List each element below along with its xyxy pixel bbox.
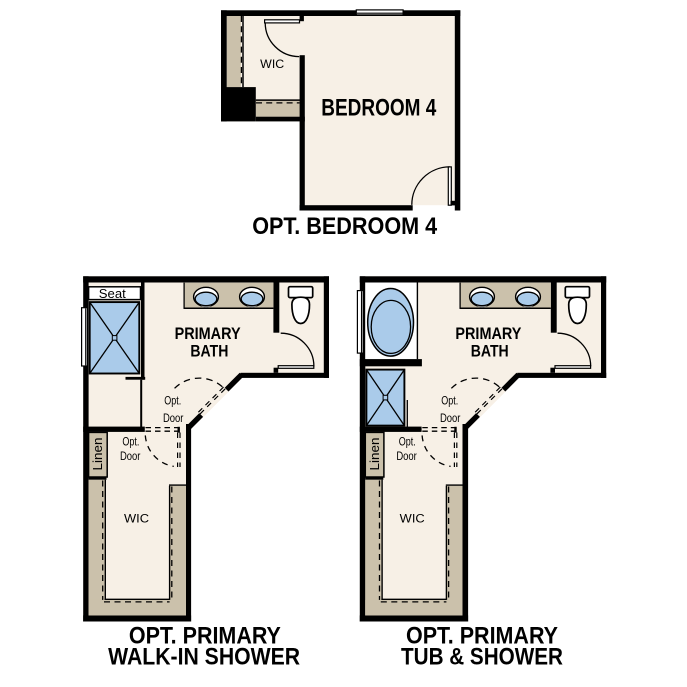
svg-text:PRIMARY: PRIMARY	[455, 325, 521, 343]
svg-text:WIC: WIC	[260, 57, 284, 71]
svg-text:Linen: Linen	[368, 437, 382, 470]
svg-text:Opt.: Opt.	[164, 396, 181, 408]
svg-text:Seat: Seat	[99, 287, 127, 301]
svg-text:Opt.: Opt.	[441, 396, 458, 408]
svg-text:WIC: WIC	[124, 512, 149, 526]
svg-text:Door: Door	[163, 413, 184, 425]
svg-text:WIC: WIC	[400, 512, 425, 526]
svg-text:OPT. BEDROOM 4: OPT. BEDROOM 4	[252, 213, 438, 240]
svg-text:Opt.: Opt.	[399, 436, 416, 448]
svg-text:Door: Door	[396, 451, 417, 463]
svg-text:TUB & SHOWER: TUB & SHOWER	[401, 643, 563, 670]
svg-text:PRIMARY: PRIMARY	[175, 325, 241, 343]
svg-text:WALK-IN SHOWER: WALK-IN SHOWER	[108, 643, 300, 670]
svg-text:Linen: Linen	[91, 437, 105, 470]
svg-text:BATH: BATH	[190, 343, 228, 361]
svg-text:BEDROOM 4: BEDROOM 4	[321, 95, 437, 122]
svg-text:Opt.: Opt.	[122, 436, 139, 448]
svg-text:BATH: BATH	[471, 343, 509, 361]
svg-text:Door: Door	[120, 451, 141, 463]
svg-text:Door: Door	[440, 413, 461, 425]
